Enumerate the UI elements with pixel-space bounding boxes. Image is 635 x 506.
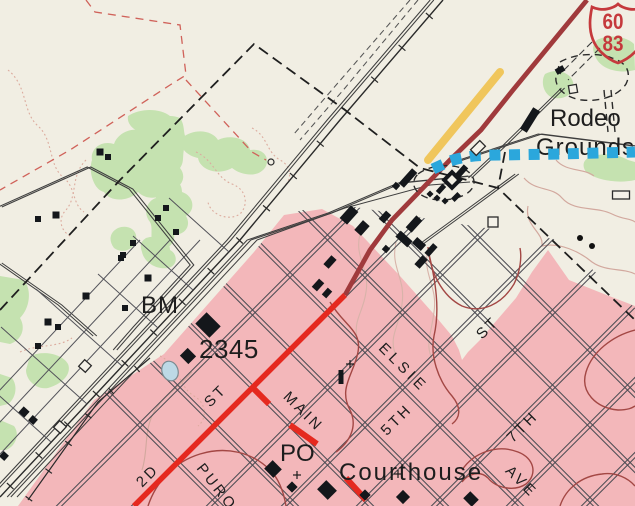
svg-text:BM: BM: [141, 292, 179, 319]
svg-text:Courthouse: Courthouse: [339, 459, 483, 486]
svg-text:83: 83: [603, 31, 624, 56]
svg-text:PO: PO: [280, 440, 315, 467]
svg-text:Rodeo: Rodeo: [550, 105, 621, 132]
svg-text:2345: 2345: [199, 334, 259, 364]
